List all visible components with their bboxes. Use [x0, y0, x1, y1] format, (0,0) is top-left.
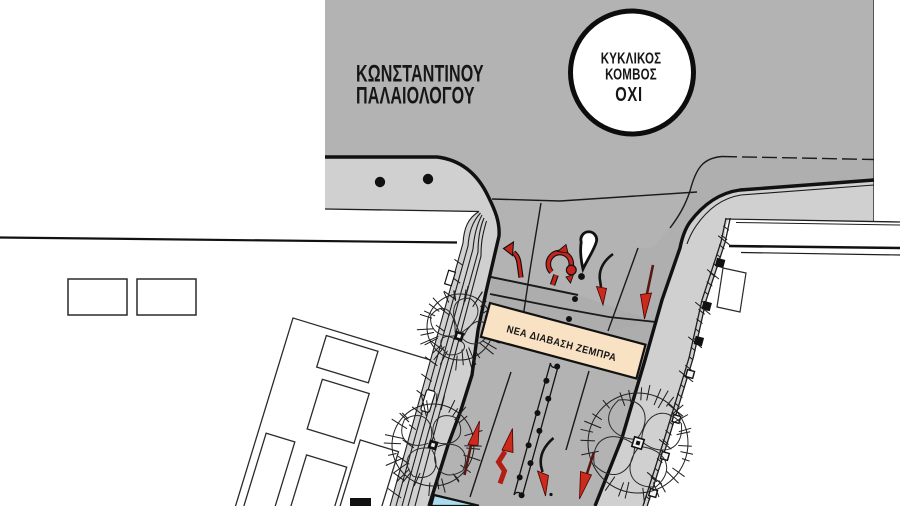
svg-text:ΠΑΛΑΙΟΛΟΓΟΥ: ΠΑΛΑΙΟΛΟΓΟΥ [356, 84, 475, 110]
svg-text:ΚΟΜΒΟΣ: ΚΟΜΒΟΣ [605, 65, 657, 83]
svg-text:ΟΧΙ: ΟΧΙ [615, 83, 643, 106]
